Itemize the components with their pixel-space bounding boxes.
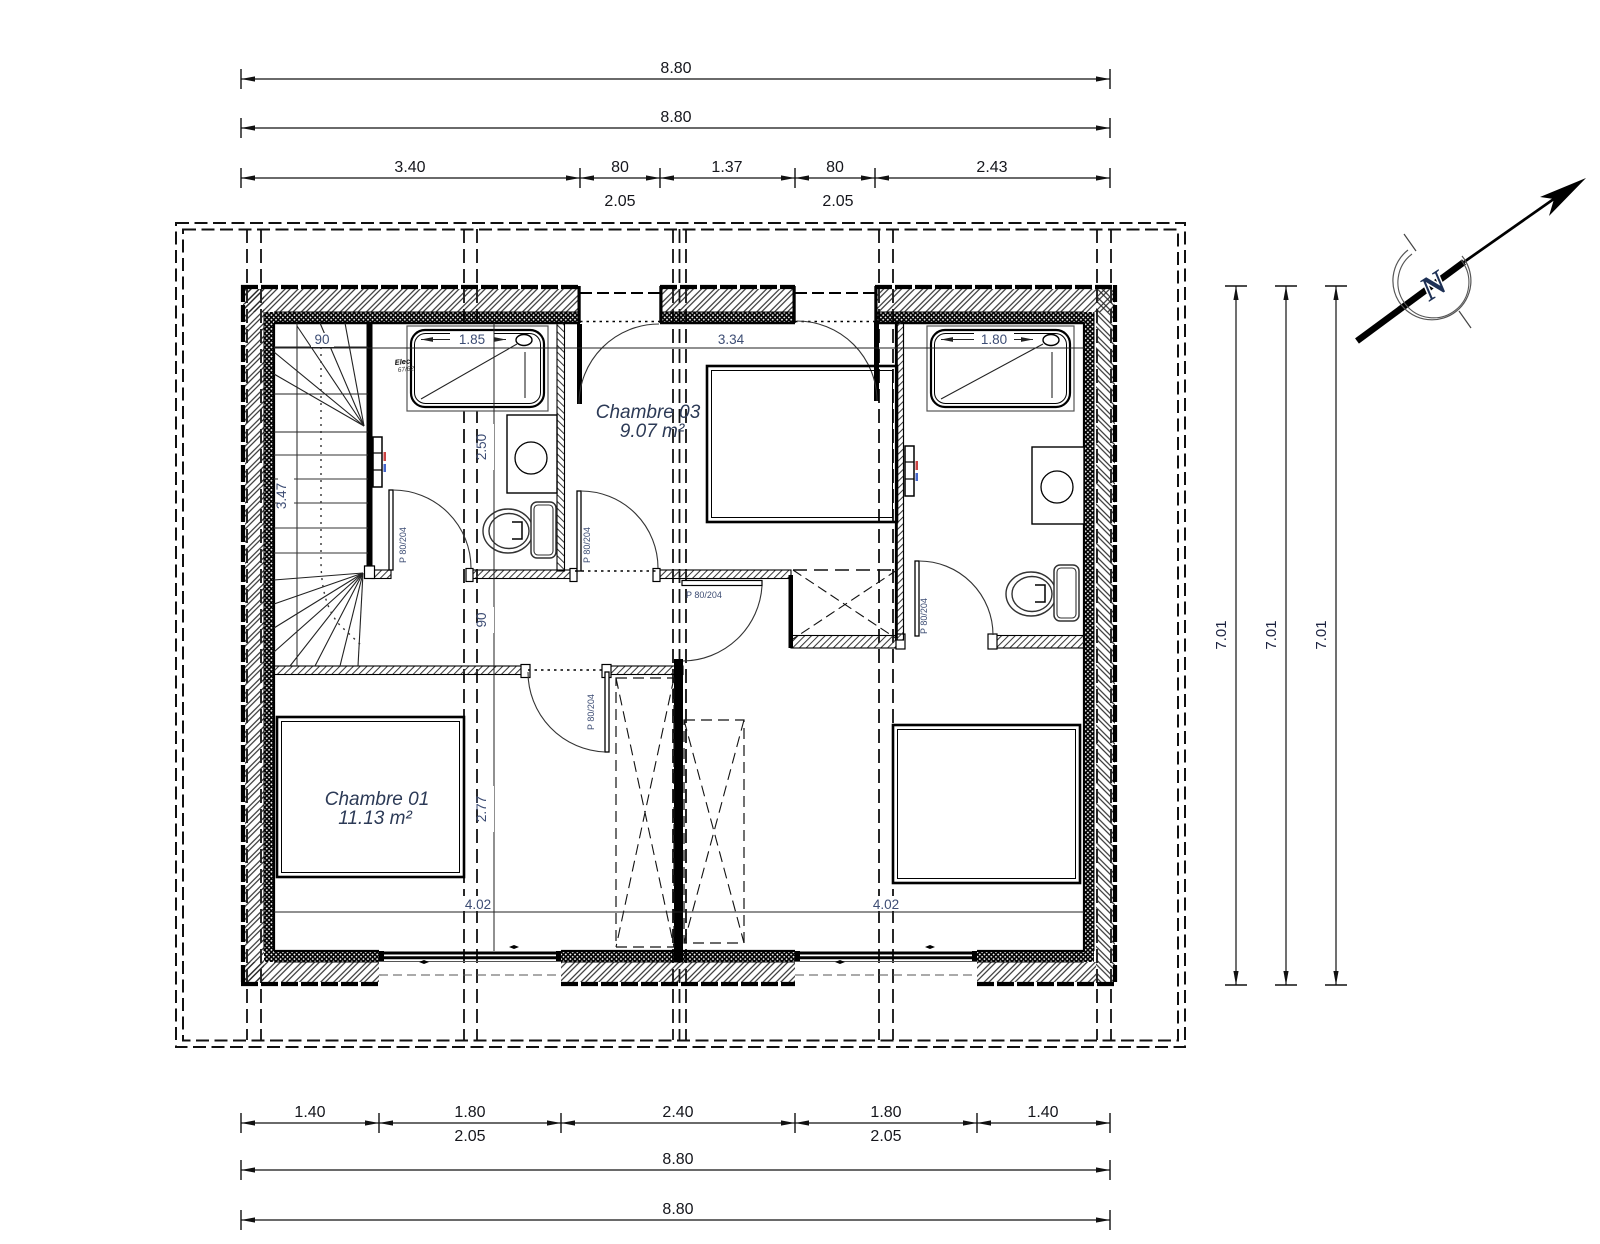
- svg-text:1.80: 1.80: [870, 1104, 901, 1121]
- svg-text:P 80/204: P 80/204: [686, 590, 722, 600]
- svg-text:11.13 m²: 11.13 m²: [338, 808, 412, 829]
- svg-text:1.80: 1.80: [454, 1104, 485, 1121]
- svg-text:7.01: 7.01: [1263, 620, 1280, 649]
- svg-text:2.40: 2.40: [662, 1104, 693, 1121]
- svg-text:2.05: 2.05: [604, 193, 635, 210]
- svg-text:2.77: 2.77: [474, 796, 489, 822]
- svg-text:8.80: 8.80: [662, 1201, 693, 1218]
- svg-text:8.80: 8.80: [660, 109, 691, 126]
- svg-text:1.40: 1.40: [294, 1104, 325, 1121]
- svg-text:90: 90: [474, 612, 489, 627]
- svg-text:Chambre 01: Chambre 01: [325, 789, 430, 810]
- svg-text:4.02: 4.02: [465, 897, 491, 912]
- svg-text:3.40: 3.40: [394, 159, 425, 176]
- svg-text:4.02: 4.02: [873, 897, 899, 912]
- svg-text:2.05: 2.05: [454, 1128, 485, 1145]
- svg-text:90: 90: [314, 332, 329, 347]
- svg-text:1.37: 1.37: [711, 159, 742, 176]
- svg-text:7.01: 7.01: [1313, 620, 1330, 649]
- svg-text:7.01: 7.01: [1213, 620, 1230, 649]
- svg-text:2.50: 2.50: [474, 434, 489, 460]
- svg-text:8.80: 8.80: [662, 1151, 693, 1168]
- svg-text:80: 80: [611, 159, 629, 176]
- svg-text:2.05: 2.05: [822, 193, 853, 210]
- svg-text:P 80/204: P 80/204: [919, 598, 929, 634]
- svg-text:2.43: 2.43: [976, 159, 1007, 176]
- svg-text:9.07 m²: 9.07 m²: [620, 421, 685, 442]
- svg-text:3.47: 3.47: [274, 483, 289, 509]
- svg-text:1.40: 1.40: [1027, 1104, 1058, 1121]
- svg-text:P 80/204: P 80/204: [398, 527, 408, 563]
- svg-text:2.05: 2.05: [870, 1128, 901, 1145]
- svg-text:8.80: 8.80: [660, 60, 691, 77]
- svg-text:1.80: 1.80: [981, 332, 1007, 347]
- svg-text:80: 80: [826, 159, 844, 176]
- svg-text:P 80/204: P 80/204: [582, 527, 592, 563]
- svg-text:Chambre 03: Chambre 03: [596, 402, 701, 423]
- svg-text:1.85: 1.85: [459, 332, 485, 347]
- svg-text:3.34: 3.34: [718, 332, 745, 347]
- svg-text:P 80/204: P 80/204: [586, 694, 596, 730]
